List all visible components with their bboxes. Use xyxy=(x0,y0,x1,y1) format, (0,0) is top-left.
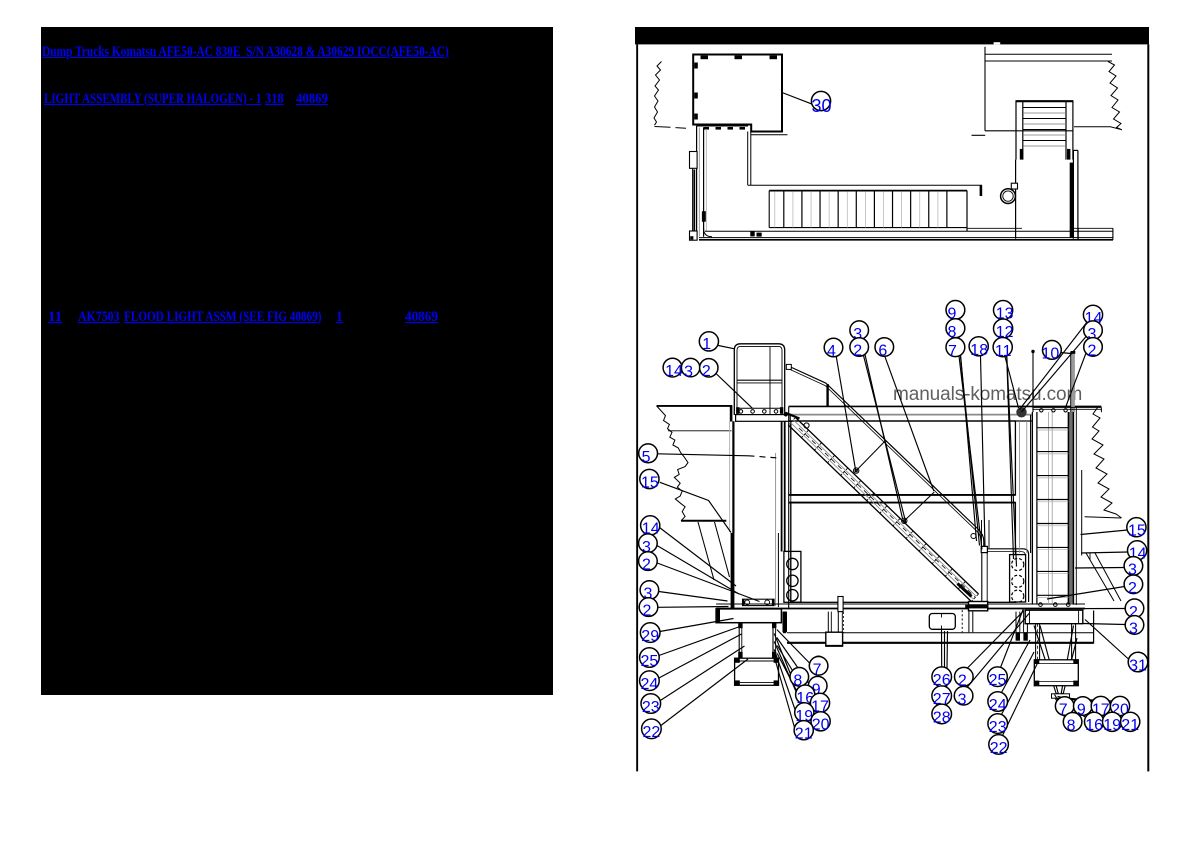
svg-text:3: 3 xyxy=(684,363,693,380)
svg-text:22: 22 xyxy=(990,740,1008,757)
svg-text:4: 4 xyxy=(827,343,836,360)
svg-text:25: 25 xyxy=(989,672,1007,689)
svg-text:15: 15 xyxy=(641,474,659,491)
svg-text:24: 24 xyxy=(989,697,1007,714)
svg-text:10: 10 xyxy=(1042,345,1060,362)
svg-text:21: 21 xyxy=(1121,717,1139,734)
svg-text:2: 2 xyxy=(1088,343,1097,360)
svg-text:20: 20 xyxy=(812,717,830,734)
svg-text:18: 18 xyxy=(970,342,988,359)
svg-text:14: 14 xyxy=(665,363,683,380)
svg-text:6: 6 xyxy=(878,343,887,360)
svg-text:22: 22 xyxy=(643,724,661,741)
svg-text:23: 23 xyxy=(989,719,1007,736)
svg-text:2: 2 xyxy=(643,603,652,620)
svg-text:2: 2 xyxy=(642,557,651,574)
svg-text:23: 23 xyxy=(642,699,660,716)
svg-text:24: 24 xyxy=(641,676,659,693)
svg-text:11: 11 xyxy=(995,343,1012,360)
svg-text:3: 3 xyxy=(1129,621,1138,638)
svg-text:2: 2 xyxy=(1128,580,1137,597)
svg-text:16: 16 xyxy=(1085,717,1103,734)
svg-text:30: 30 xyxy=(811,96,831,116)
svg-text:28: 28 xyxy=(933,709,951,726)
svg-text:5: 5 xyxy=(642,449,651,466)
svg-text:7: 7 xyxy=(948,343,957,360)
svg-text:29: 29 xyxy=(641,628,659,645)
svg-text:manuals-komatsu.com: manuals-komatsu.com xyxy=(893,384,1082,405)
svg-text:1: 1 xyxy=(702,336,711,353)
svg-text:19: 19 xyxy=(1103,717,1121,734)
svg-text:25: 25 xyxy=(641,653,659,670)
svg-text:31: 31 xyxy=(1129,657,1147,674)
svg-text:8: 8 xyxy=(1067,717,1076,734)
svg-text:3: 3 xyxy=(958,691,967,708)
svg-text:21: 21 xyxy=(795,726,813,743)
svg-text:2: 2 xyxy=(702,363,711,380)
svg-text:2: 2 xyxy=(853,343,862,360)
svg-text:15: 15 xyxy=(1128,523,1146,540)
